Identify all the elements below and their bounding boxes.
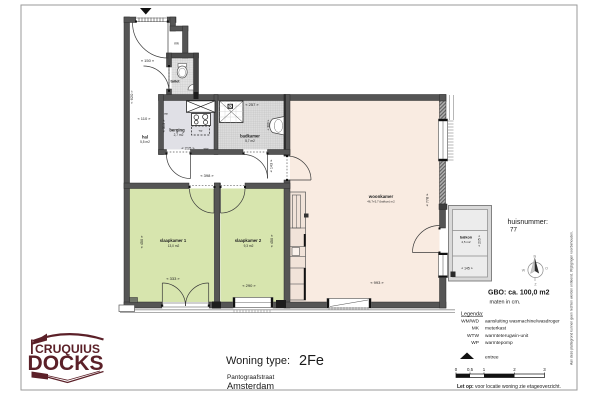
svg-text:GBO: ca. 100,0 m2: GBO: ca. 100,0 m2 bbox=[488, 290, 550, 297]
svg-text:MK: MK bbox=[472, 326, 480, 332]
svg-text:2Fe: 2Fe bbox=[299, 353, 324, 369]
svg-text:DOCKS: DOCKS bbox=[28, 351, 104, 375]
svg-text:9,3 m2: 9,3 m2 bbox=[244, 244, 254, 248]
svg-text:« 313 »: « 313 » bbox=[162, 120, 166, 133]
svg-text:« 333 »: « 333 » bbox=[166, 276, 180, 281]
svg-text:maten in cm.: maten in cm. bbox=[490, 300, 521, 306]
svg-text:« 450 »: « 450 » bbox=[270, 235, 274, 248]
svg-text:WM/WD: WM/WD bbox=[461, 319, 479, 325]
svg-text:huisnummer:: huisnummer: bbox=[508, 219, 549, 226]
svg-text:balkon: balkon bbox=[460, 236, 473, 240]
svg-text:meterkast: meterkast bbox=[485, 326, 507, 332]
svg-text:« 215 »: « 215 » bbox=[181, 146, 195, 151]
svg-text:« 300 »: « 300 » bbox=[267, 119, 271, 130]
svg-text:toilet: toilet bbox=[170, 80, 180, 84]
svg-text:entree: entree bbox=[485, 355, 499, 361]
svg-text:77: 77 bbox=[510, 227, 517, 234]
svg-text:WTW: WTW bbox=[467, 333, 479, 339]
svg-text:« 450 »: « 450 » bbox=[140, 236, 144, 249]
svg-text:warmteterugwin-unit: warmteterugwin-unit bbox=[485, 333, 529, 339]
svg-text:hal: hal bbox=[142, 134, 148, 139]
svg-text:badkamer: badkamer bbox=[240, 134, 260, 139]
svg-text:Pantograafstraat: Pantograafstraat bbox=[227, 374, 274, 381]
svg-text:aansluiting wasmachine/wasdrog: aansluiting wasmachine/wasdroger bbox=[485, 319, 560, 325]
svg-text:4,5 m2: 4,5 m2 bbox=[461, 240, 471, 244]
svg-text:« 150 »: « 150 » bbox=[141, 58, 155, 63]
svg-text:O: O bbox=[545, 267, 548, 271]
svg-text:Let op: voor locatie woning: Let op: voor locatie woning zie etageove… bbox=[457, 384, 561, 390]
svg-text:2,7 m2: 2,7 m2 bbox=[174, 133, 184, 137]
svg-text:W: W bbox=[522, 269, 526, 273]
svg-text:WP: WP bbox=[471, 340, 479, 346]
svg-text:Woning type:: Woning type: bbox=[226, 355, 290, 367]
svg-text:« 205 »: « 205 » bbox=[478, 235, 482, 246]
svg-text:13,0 m2: 13,0 m2 bbox=[168, 244, 180, 248]
svg-text:0,5: 0,5 bbox=[467, 367, 474, 372]
svg-text:« 398 »: « 398 » bbox=[200, 173, 214, 178]
svg-text:5,7 m2: 5,7 m2 bbox=[245, 139, 255, 143]
svg-text:« 778 »: « 778 » bbox=[426, 194, 430, 207]
svg-text:46,7+5,7 (balkon) m2: 46,7+5,7 (balkon) m2 bbox=[367, 199, 395, 203]
svg-text:5,5 m2: 5,5 m2 bbox=[140, 140, 150, 144]
svg-text:wp: wp bbox=[164, 112, 168, 116]
svg-text:« 110 »: « 110 » bbox=[137, 116, 151, 121]
svg-text:Aan deze plattegrond kunnen ge: Aan deze plattegrond kunnen geen rechten… bbox=[570, 231, 574, 365]
svg-text:Amsterdam: Amsterdam bbox=[227, 381, 274, 391]
svg-text:« 620 »: « 620 » bbox=[129, 90, 134, 104]
svg-text:« 145 »: « 145 » bbox=[461, 267, 472, 271]
svg-text:slaapkamer 2: slaapkamer 2 bbox=[235, 238, 262, 243]
svg-text:warmtepomp: warmtepomp bbox=[485, 340, 513, 346]
svg-text:« 290 »: « 290 » bbox=[242, 283, 256, 288]
svg-text:berging: berging bbox=[169, 128, 185, 133]
svg-text:« 143 »: « 143 » bbox=[270, 160, 274, 173]
svg-text:slaapkamer 1: slaapkamer 1 bbox=[160, 238, 187, 243]
svg-text:wp: wp bbox=[199, 129, 203, 133]
svg-text:mk: mk bbox=[174, 42, 179, 46]
svg-text:« 257 »: « 257 » bbox=[245, 102, 259, 107]
svg-text:N: N bbox=[533, 255, 536, 259]
svg-text:woonkamer: woonkamer bbox=[368, 194, 394, 199]
svg-text:« 993 »: « 993 » bbox=[370, 280, 384, 285]
